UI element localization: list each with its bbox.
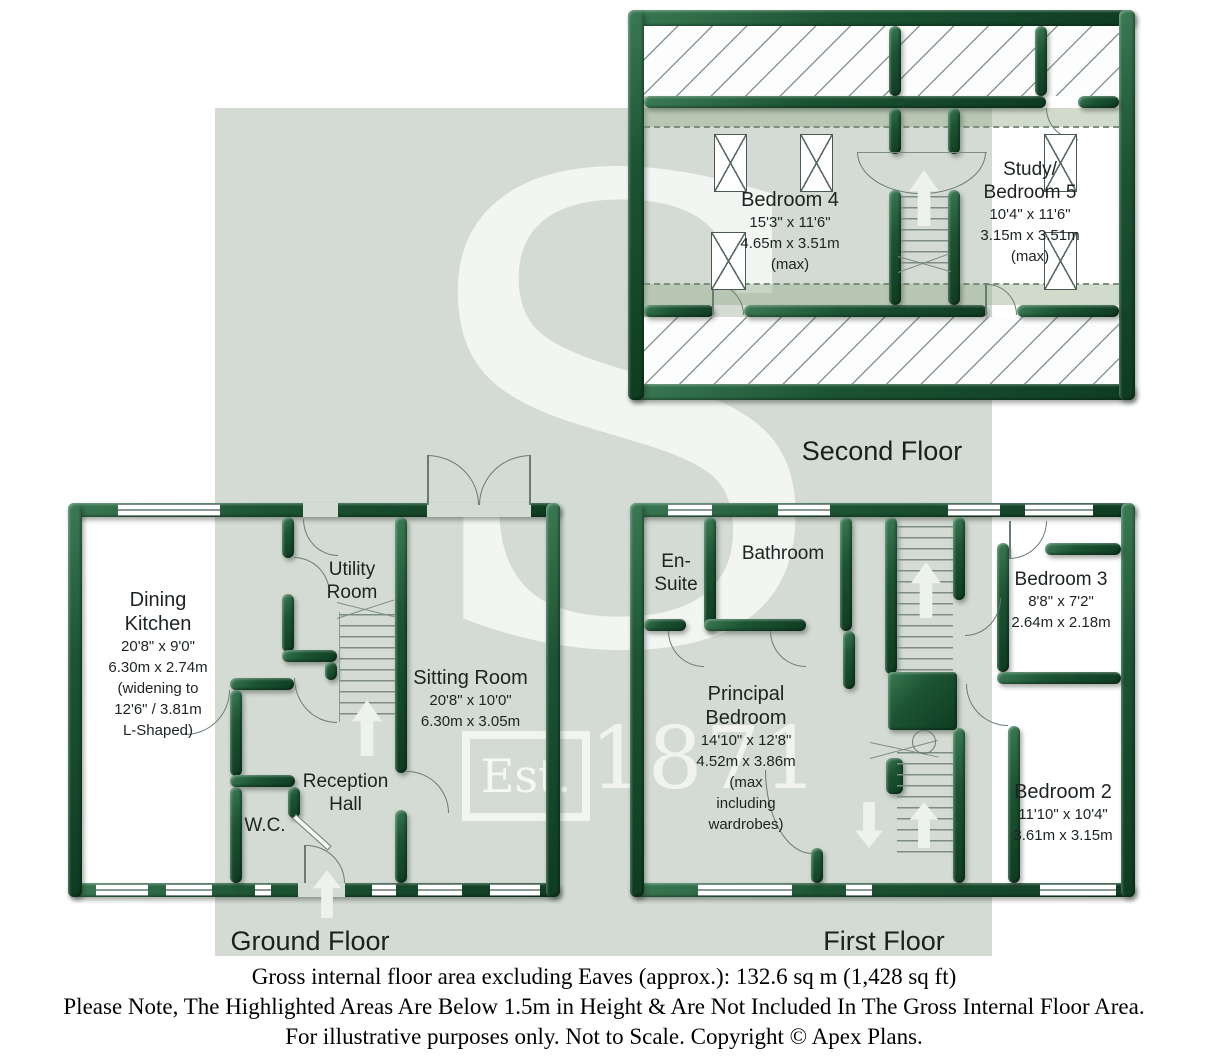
door-opening	[303, 503, 338, 517]
room-label-reception: Reception Hall	[298, 770, 393, 816]
window	[372, 884, 396, 896]
wall	[395, 517, 407, 773]
wall	[885, 517, 897, 674]
room-label-utility: Utility Room	[300, 558, 404, 604]
door-opening	[427, 503, 531, 517]
window	[255, 884, 271, 896]
note-gross-area: Gross internal floor area excluding Eave…	[0, 964, 1208, 990]
wall	[1045, 543, 1121, 555]
window	[166, 884, 212, 896]
eaves-hatch	[644, 317, 1119, 384]
window	[948, 504, 1000, 516]
wall	[282, 594, 294, 652]
note-highlighted-areas: Please Note, The Highlighted Areas Are B…	[0, 994, 1208, 1020]
roof-window	[714, 134, 747, 192]
wall	[628, 10, 644, 400]
wall	[644, 305, 714, 317]
wall	[811, 848, 823, 883]
roof-window	[800, 134, 833, 192]
window	[418, 884, 462, 896]
wall	[1078, 96, 1119, 108]
wall	[997, 672, 1121, 684]
second-floor-title: Second Floor	[732, 436, 1032, 467]
wall	[546, 503, 560, 897]
room-label-bedroom5: Study/ Bedroom 5 10'4" x 11'6" 3.15m x 3…	[955, 158, 1105, 267]
room-label-sitting: Sitting Room 20'8" x 10'0" 6.30m x 3.05m	[398, 666, 543, 732]
ground-floor-title: Ground Floor	[160, 926, 460, 957]
french-door-jamb	[529, 455, 531, 505]
wall	[628, 384, 1135, 400]
room-label-bedroom3: Bedroom 3 8'8" x 7'2" 2.64m x 2.18m	[1003, 568, 1119, 633]
window	[96, 884, 148, 896]
wall	[889, 190, 901, 305]
wall	[282, 650, 337, 662]
room-label-ensuite: En- Suite	[642, 550, 710, 596]
room-label-wc: W.C.	[238, 814, 292, 837]
wall	[644, 96, 1046, 108]
window	[1040, 884, 1116, 896]
wall	[744, 305, 987, 317]
wall	[282, 517, 294, 558]
wall	[953, 517, 965, 600]
wall	[948, 108, 960, 154]
room-label-bedroom2: Bedroom 2 11'10" x 10'4" 3.61m x 3.15m	[998, 780, 1128, 846]
wall	[395, 810, 407, 883]
room-label-bedroom4: Bedroom 4 15'3" x 11'6" 4.65m x 3.51m (m…	[695, 188, 885, 275]
window	[698, 884, 792, 896]
wall	[843, 631, 855, 689]
room-label-dining-kitchen: Dining Kitchen 20'8" x 9'0" 6.30m x 2.74…	[76, 588, 240, 741]
room-label-bathroom: Bathroom	[733, 542, 833, 565]
window	[1025, 504, 1093, 516]
window	[668, 504, 712, 516]
first-floor-title: First Floor	[734, 926, 1034, 957]
wall	[1017, 305, 1119, 317]
wall	[889, 108, 901, 154]
stair-newel-circle	[912, 730, 936, 754]
stair-landing-block	[888, 672, 957, 730]
wall	[704, 619, 806, 631]
wall	[953, 728, 965, 883]
window	[118, 504, 220, 516]
wall	[1035, 26, 1047, 96]
door-arc	[1009, 521, 1047, 559]
eaves-hatch	[644, 26, 1119, 96]
room-label-principal: Principal Bedroom 14'10" x 12'8" 4.52m x…	[664, 682, 828, 835]
wall	[628, 10, 1135, 26]
note-copyright: For illustrative purposes only. Not to S…	[0, 1024, 1208, 1050]
floorplan-page: S Est. 1871 Bedroom 4 15'3" x 11'6" 4.65…	[0, 0, 1208, 1056]
wall	[230, 775, 295, 787]
wall	[1119, 10, 1135, 400]
wall	[889, 26, 901, 96]
window	[778, 504, 830, 516]
headroom-dashed-line	[644, 126, 1119, 128]
window	[490, 884, 540, 896]
wall	[840, 517, 852, 631]
window	[846, 884, 872, 896]
door-arc	[965, 598, 1001, 636]
wall	[644, 619, 686, 631]
watermark-est-box: Est.	[462, 731, 590, 821]
